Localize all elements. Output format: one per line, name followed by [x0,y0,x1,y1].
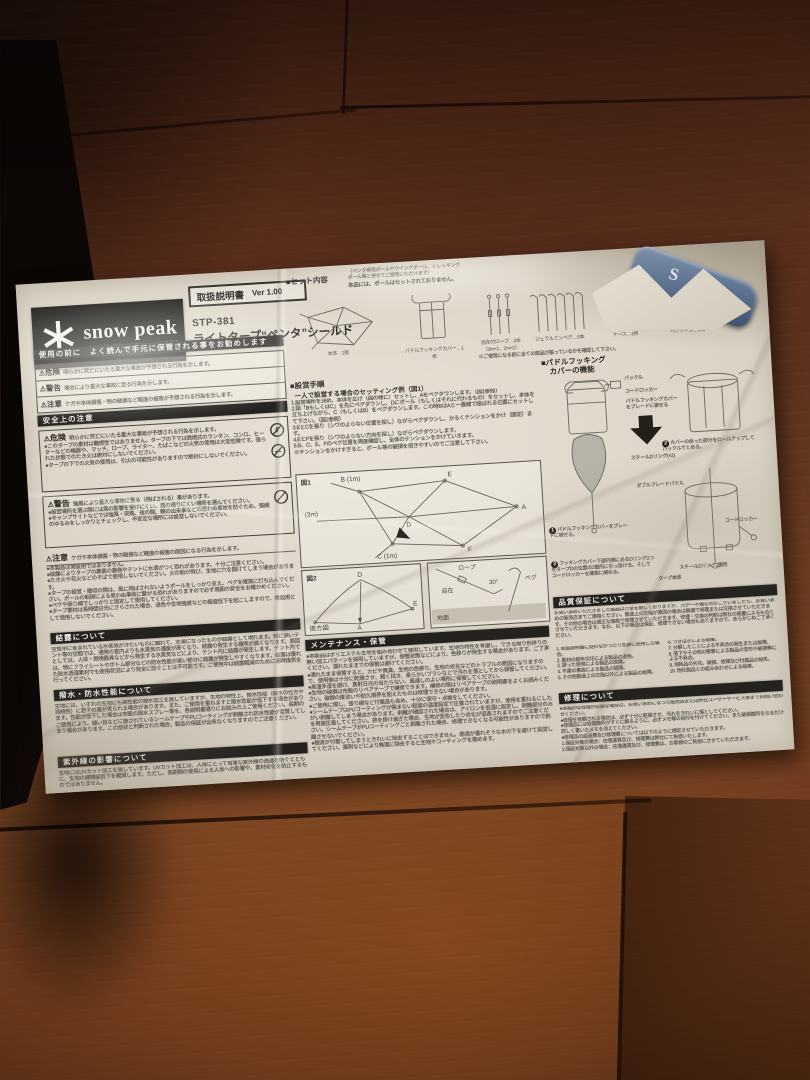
fig2-rear-label: 後方図 [309,623,329,633]
fig1-point-f: F [468,546,472,553]
quality-list-right: 6. つぎはぎによる故障。7. 分解したことによる不具合の発生または故障。8. … [668,634,782,683]
blue-case-letter: S [666,264,681,286]
paddle-illustration: バックル コードロッカー パドルフッキングカバーをブレードに被せる スチールDリ… [540,364,776,593]
ropes-icon [483,291,516,339]
peg-rope-label: ロープ [458,564,476,572]
down-arrow-icon [629,415,663,446]
warning-box: ⚠警告 強風により重大な事故に至る（飛ばされる）事があります。 ●設営場所を選ぶ… [42,482,295,549]
quality-list-left: 1. 取扱説明書に従わなかったり乱暴に使用した場合。2. 素材の経年劣化による製… [556,641,664,689]
danger-box: ⚠危険 明らかに死亡にいたる重大な事故が予想される行為を示します。 ●このタープ… [38,416,291,493]
item-pegs: ジュラルミンペグ…6本 [527,287,590,343]
peg-adjuster-label: 自在 [441,586,453,595]
fig2-point-d: D [357,572,362,579]
model-number: STP-381 [192,316,236,330]
peg-angle-label: 30° [489,580,499,587]
fig1-rope-3m: (3m) [305,511,319,519]
figure-1: 図1 B (1m) E (3m) D A C (1m) F [295,460,546,568]
fig1-label: 図1 [301,478,312,488]
figure-1-diagram: 図1 B (1m) E (3m) D A C (1m) F [296,461,543,565]
fig2-point-a: A [357,625,362,632]
peg-label: ペグ [525,573,537,582]
fig1-point-c: C (1m) [377,553,397,561]
no-open-flame-icon [269,422,285,438]
item-cover: パドルフッキングカバー…1枚 [401,286,465,361]
item-ropes-label: 自在付ロープ…3本（3m×1、2m×2） [478,337,525,354]
repair-bullets: ●本格的な修理が必要な場合は、お買い求めになった販売店または弊社ユーザーサービス… [560,694,787,759]
maintenance-bullets: ●本製品はポリエステル生地を組み合わせて使用しています。生地の特性を考慮し、でき… [306,640,557,774]
fig2-label: 図2 [306,573,317,583]
item-tarp: 本体…1張 [291,299,382,359]
fig1-point-a: A [521,504,526,511]
paddle-cover-icon [409,287,456,348]
dark-plank-bottom-right [619,796,810,1080]
photo-scene: snow peak outdoor lifestyle creator sinc… [0,0,810,1080]
fig1-point-e: E [447,471,452,478]
figure-2: 図2 D A E 後方図 [301,563,425,636]
peg-detail-diagram: ロープ 30° 自在 ペグ 地面 [428,557,547,626]
pegs-icon [529,287,588,336]
figure-2-diagram: 図2 D A E 後方図 [302,564,421,633]
tarp-body-icon [291,299,380,352]
item-cover-label: パドルフッキングカバー…1枚 [404,344,465,362]
no-fire-icon [270,443,286,459]
setup-steps: 1.設営場所を決め、本体を広げ（図の様に）セットし、Aをペグダウンします。（図1… [291,386,539,472]
fig1-point-d: D [406,522,411,529]
fig2-point-e: E [413,600,418,607]
manual-version: Ver 1.00 [252,287,283,298]
peg-detail-figure: ロープ 30° 自在 ペグ 地面 [427,556,551,629]
set-contents-title: ■セット内容 [286,274,329,287]
prohibition-icon [273,489,289,505]
buckle-label: バックル [624,376,643,383]
brand-name: snow peak [83,317,178,343]
item-ropes: 自在付ロープ…3本（3m×1、2m×2） [475,291,524,354]
fig1-point-b: B (1m) [340,476,360,484]
manual-label: 取扱説明書 [196,287,244,304]
caution-section: ⚠注意 ケガや本体損傷・物の破損など軽度の被害の原因になる行為を示します。 ●本… [46,539,300,632]
